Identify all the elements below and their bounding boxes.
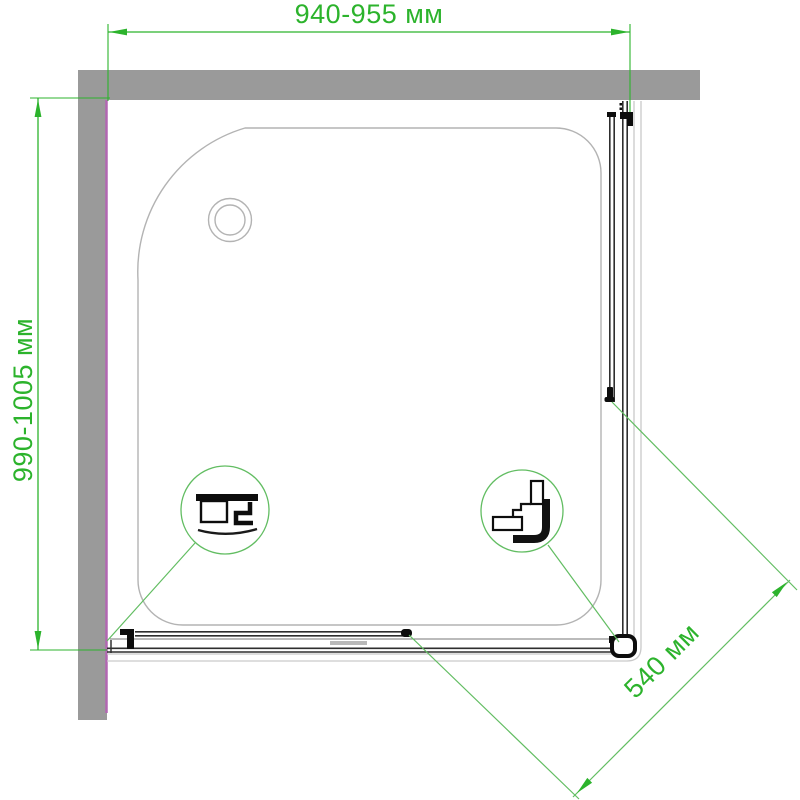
dimension-top-label: 940-955 мм bbox=[295, 0, 444, 29]
extension-line bbox=[612, 402, 797, 590]
right-sliding-door bbox=[605, 112, 617, 402]
detail-callout-left bbox=[107, 466, 269, 641]
rail-profile-icon bbox=[196, 494, 258, 534]
dimension-arrow-top-right bbox=[772, 582, 787, 597]
rail-carriage bbox=[330, 641, 367, 645]
dimension-diagonal: 540 мм bbox=[409, 402, 797, 799]
detail-callout-right bbox=[481, 470, 619, 642]
rail-wall-tick bbox=[620, 108, 623, 111]
leader-line-right bbox=[548, 545, 619, 642]
shower-enclosure-diagram: 940-955 мм 990-1005 мм 540 мм bbox=[0, 0, 800, 800]
dimension-line bbox=[573, 580, 790, 797]
rail-wall-tick bbox=[620, 103, 623, 106]
frame-outer-line-inner bbox=[107, 101, 634, 654]
frame-outer-line-outer bbox=[107, 101, 641, 661]
dimension-arrow-right bbox=[611, 29, 629, 36]
dimension-arrow-bottom bbox=[35, 631, 42, 649]
corner-bracket bbox=[609, 636, 635, 656]
door-top-cap bbox=[607, 112, 616, 117]
dimension-arrow-left bbox=[109, 29, 127, 36]
door-bottom-roller-foot bbox=[605, 397, 615, 402]
corner-bracket-body bbox=[612, 636, 635, 656]
right-rail-assembly bbox=[620, 101, 634, 637]
wall-left bbox=[78, 70, 107, 720]
dimension-left-label: 990-1005 мм bbox=[8, 318, 38, 482]
dimension-arrow-top bbox=[35, 99, 42, 117]
technical-drawing-canvas: 940-955 мм 990-1005 мм 540 мм bbox=[0, 0, 800, 800]
leader-line-left bbox=[107, 543, 195, 641]
bracket-profile-icon bbox=[493, 481, 546, 539]
bottom-sliding-door bbox=[135, 629, 412, 637]
wall-top bbox=[78, 70, 700, 100]
drain-icon bbox=[209, 199, 252, 242]
extension-line bbox=[409, 635, 579, 799]
